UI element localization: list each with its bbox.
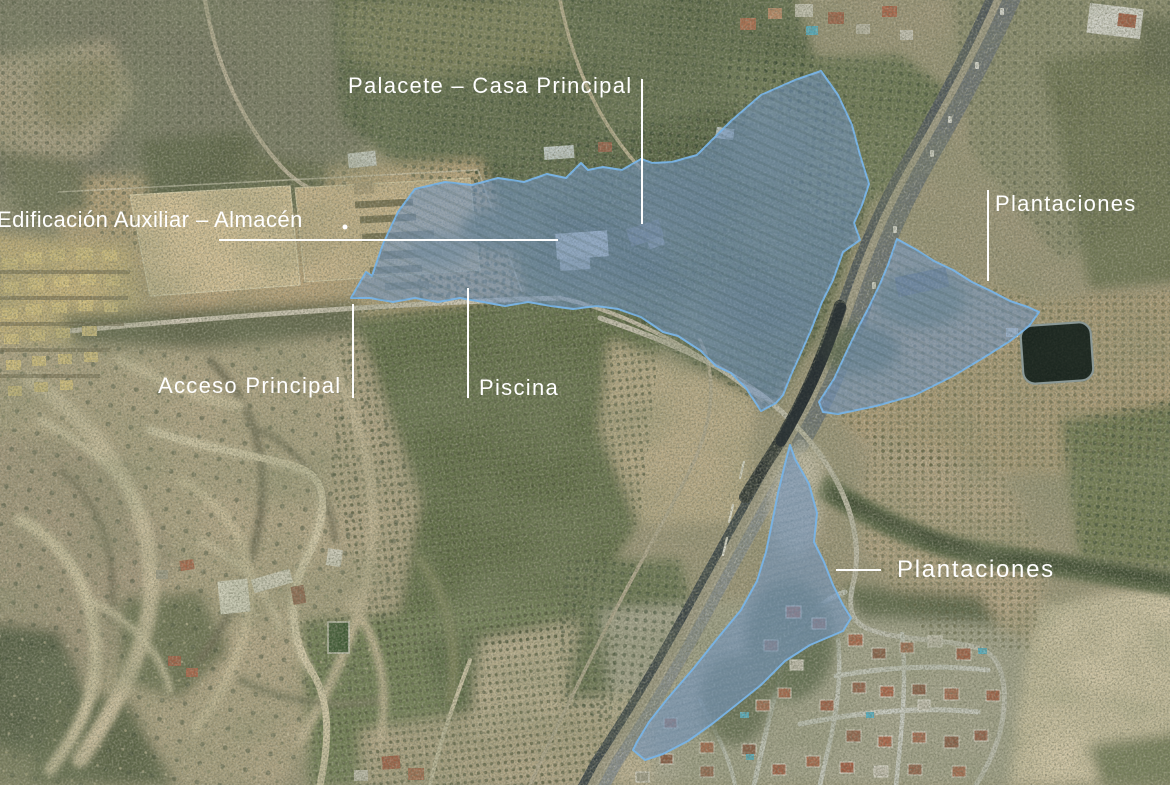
svg-text:Plantaciones: Plantaciones — [995, 191, 1137, 216]
svg-text:Edificación Auxiliar – Almacén: Edificación Auxiliar – Almacén — [0, 207, 303, 232]
svg-text:Palacete – Casa Principal: Palacete – Casa Principal — [348, 73, 632, 98]
svg-text:Acceso Principal: Acceso Principal — [158, 373, 341, 398]
svg-text:Piscina: Piscina — [479, 375, 559, 400]
svg-text:Plantaciones: Plantaciones — [897, 556, 1055, 583]
